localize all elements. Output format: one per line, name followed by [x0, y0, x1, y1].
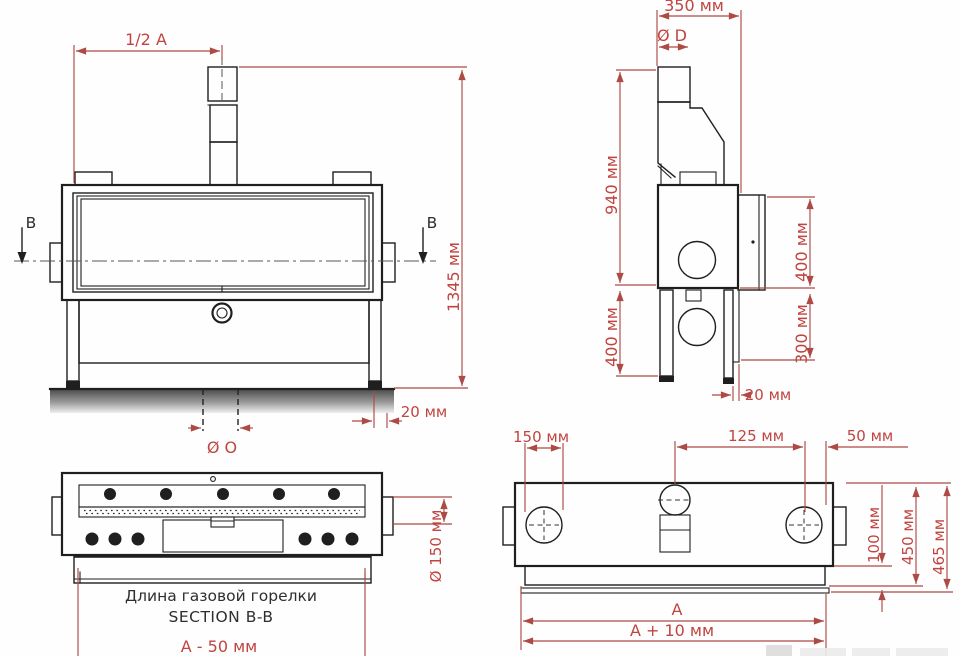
front-base [66, 300, 382, 388]
dim-burner-diameter-label: Ø 150 мм [427, 510, 445, 583]
dim-opening-offset-label: 125 мм [728, 427, 784, 445]
front-chimney [208, 57, 237, 185]
technical-drawing: B B 1/2 A 1345 мм 20 мм Ø O [0, 0, 960, 656]
dim-leg-height-label: 400 мм [602, 307, 621, 367]
ground-hatch [50, 389, 394, 413]
side-body [658, 185, 765, 290]
dim-depth-inner-label: 450 мм [899, 509, 917, 565]
left-stub [50, 243, 62, 282]
dim-flue-diameter-label: Ø D [657, 26, 687, 45]
watermark [766, 645, 948, 656]
dim-depth-label: 350 мм [664, 0, 724, 15]
dim-side-opening-label: 150 мм [513, 428, 569, 446]
caption-burner-length: Длина газовой горелки [125, 587, 317, 605]
burner-body [52, 473, 393, 555]
top-body [503, 483, 846, 593]
apron-panel [79, 300, 369, 363]
section-marker-right: B [419, 214, 438, 264]
section-label-left: B [26, 214, 37, 232]
dim-base-height-label: 100 мм [865, 507, 883, 563]
caption-section-bb: SECTION B-B [168, 608, 273, 626]
top-strip [521, 588, 829, 593]
section-arrow-icon [18, 252, 27, 264]
side-base [659, 290, 739, 384]
lower-port [679, 309, 716, 346]
dim-bottom-opening-label: Ø O [207, 438, 237, 457]
section-dimensions: Ø 150 мм A - 50 мм [78, 497, 452, 656]
section-arrow-icon [419, 252, 428, 264]
section-base [74, 556, 371, 583]
dim-ground-clearance-label: 20 мм [401, 403, 448, 421]
dim-length-a-label: A [672, 600, 683, 619]
dim-lower-height-label: 300 мм [792, 304, 811, 364]
perforated-strip [79, 507, 365, 517]
front-view: B B 1/2 A 1345 мм 20 мм Ø O [14, 30, 468, 457]
section-view: Ø 150 мм A - 50 мм Длина газовой горелки… [52, 473, 452, 656]
dim-leg-offset-label: 20 мм [745, 386, 792, 404]
section-label-right: B [427, 214, 438, 232]
top-dimensions: 150 мм 125 мм 50 мм 100 мм 450 мм 465 мм… [513, 427, 953, 656]
dim-total-height-label: 1345 мм [444, 242, 463, 312]
side-dimensions: 350 мм Ø D 940 мм 400 мм 400 мм 300 мм 2… [602, 0, 815, 404]
dim-upper-height-label: 940 мм [602, 155, 621, 215]
right-stub [382, 243, 395, 282]
front-firebox [14, 172, 436, 300]
drawing-svg: B B 1/2 A 1345 мм 20 мм Ø O [0, 0, 960, 656]
section-marker-left: B [18, 214, 37, 264]
top-base [525, 566, 825, 585]
dim-flue-offset-label: 50 мм [847, 427, 894, 445]
upper-port [679, 242, 716, 279]
side-chimney-hood [658, 67, 724, 185]
side-view: 350 мм Ø D 940 мм 400 мм 400 мм 300 мм 2… [602, 0, 815, 404]
burner-nozzle [211, 517, 234, 527]
damper-box [680, 172, 716, 185]
dim-door-height-label: 400 мм [792, 222, 811, 282]
dim-burner-length-label: A - 50 мм [181, 637, 257, 656]
front-ground [50, 389, 394, 431]
dim-depth-outer-label: 465 мм [930, 519, 948, 575]
peephole [213, 304, 232, 323]
top-view: 150 мм 125 мм 50 мм 100 мм 450 мм 465 мм… [503, 427, 953, 656]
dim-half-width-label: 1/2 A [125, 30, 167, 49]
dim-length-total-label: A + 10 мм [630, 621, 714, 640]
